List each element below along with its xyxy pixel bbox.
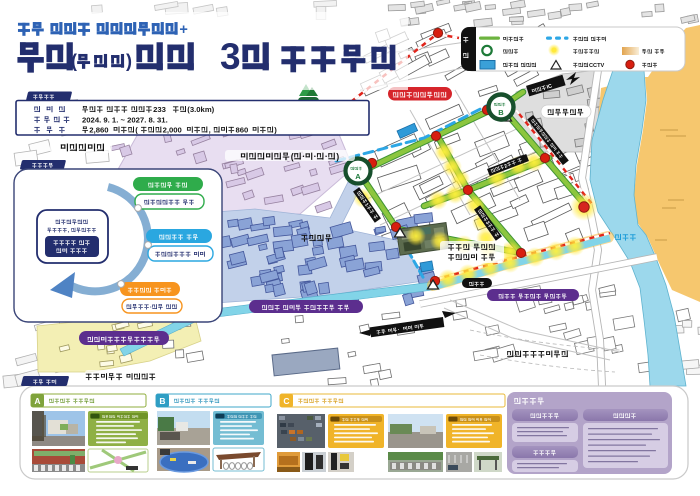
svg-text:(: ( [71, 51, 77, 71]
svg-text:2,000: 2,000 [163, 126, 182, 135]
svg-text:): ) [274, 126, 277, 135]
svg-text:2024. 9. 1. ~ 2027. 8. 31.: 2024. 9. 1. ~ 2027. 8. 31. [82, 115, 168, 124]
svg-text:): ) [336, 152, 339, 162]
svg-text:B: B [159, 396, 165, 406]
svg-text:,: , [209, 126, 211, 135]
svg-text:A: A [355, 172, 361, 181]
svg-text:860: 860 [236, 126, 249, 135]
svg-text:3: 3 [220, 36, 241, 77]
svg-text:+: + [179, 22, 187, 38]
svg-text:(3.0km): (3.0km) [187, 105, 214, 114]
svg-text:): ) [126, 51, 132, 71]
svg-text:233: 233 [153, 105, 166, 114]
svg-text:·: · [150, 304, 152, 311]
svg-text:A: A [34, 396, 40, 406]
svg-text:·: · [325, 152, 328, 162]
svg-text:·: · [314, 152, 317, 162]
svg-text:(: ( [291, 152, 294, 162]
svg-text:B: B [498, 108, 504, 117]
svg-text:·: · [302, 152, 305, 162]
svg-text:C: C [283, 396, 289, 406]
svg-text:CCTV: CCTV [589, 63, 604, 69]
svg-text:(: ( [135, 126, 138, 135]
svg-text:2,860: 2,860 [89, 126, 108, 135]
